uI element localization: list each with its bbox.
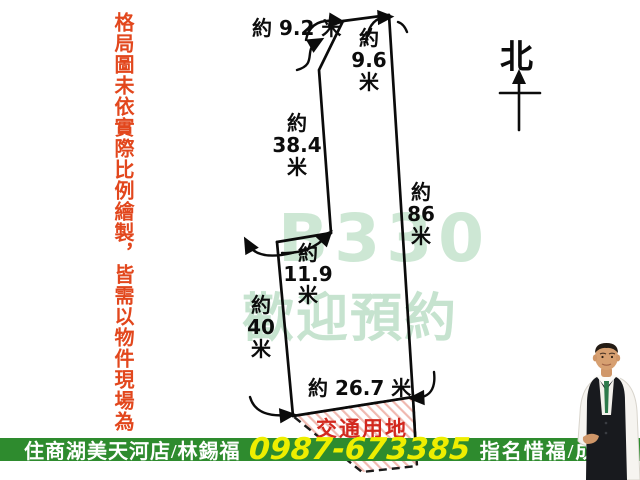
phone-number: 0987-673385: [247, 432, 471, 467]
north-label: 北: [500, 30, 533, 78]
north-arrow-icon: [500, 69, 540, 130]
agent-photo: [573, 341, 640, 480]
dim-lower-left: 約 40 米: [240, 294, 282, 360]
disclaimer-text: 格局圖未依實際比例繪製，皆需以物件現場為: [109, 12, 138, 452]
dim-top-right: 約 9.6 米: [344, 27, 394, 93]
parcel-diagram: [0, 0, 640, 480]
dim-top-width: 約 9.2 米: [252, 17, 341, 39]
dim-upper-left: 約 38.4 米: [268, 112, 326, 178]
dim-bottom-width: 約 26.7 米: [308, 377, 411, 399]
land-plot-flyer: B330 歡迎預約: [0, 0, 640, 480]
footer-bar: 住商湖美天河店/林錫福 0987-673385 指名惜福/成交最快: [0, 438, 640, 461]
dim-step: 約 11.9 米: [283, 243, 333, 306]
store-name: 住商湖美天河店/林錫福: [24, 435, 241, 464]
dim-right-side: 約 86 米: [400, 181, 442, 247]
